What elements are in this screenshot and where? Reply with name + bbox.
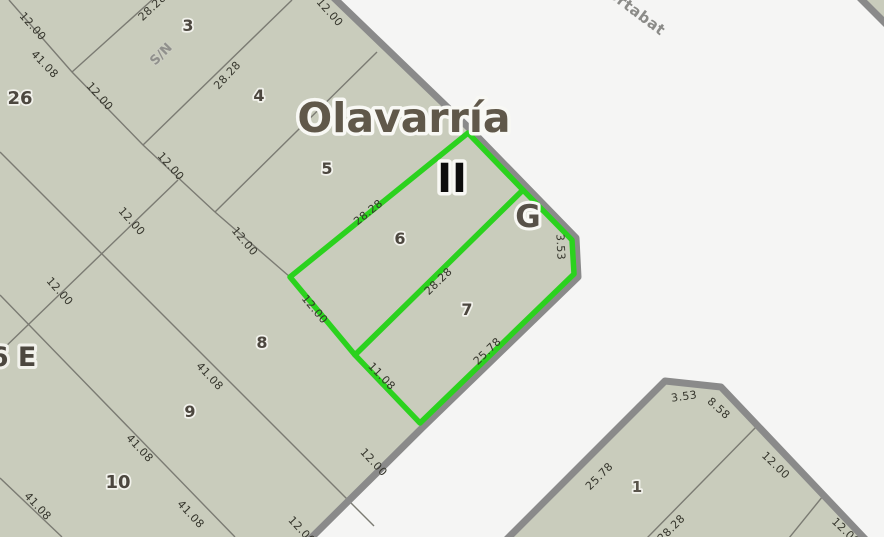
parcel-number: 4	[253, 86, 264, 105]
parcel-number: 3	[182, 16, 193, 35]
city-title-label: Olavarría	[297, 94, 510, 142]
bottom-right-city-block	[509, 381, 866, 537]
roman-numeral-marker: II	[437, 156, 467, 202]
parcel-number: 6	[394, 229, 405, 248]
parcel-number: 1	[632, 478, 642, 496]
parcel-number: 7	[461, 300, 472, 319]
map-canvas[interactable]: 12.00 41.08 28.28 12.00 28.28 12.00 12.0…	[0, 0, 884, 537]
g-zone-marker: G	[515, 199, 540, 235]
street-name-label: ortabat	[605, 0, 669, 39]
map-viewport: 12.00 41.08 28.28 12.00 28.28 12.00 12.0…	[0, 0, 884, 537]
parcel-number: 26	[7, 88, 32, 109]
parcel-number: 10	[105, 472, 130, 493]
parcel-number: 5	[321, 159, 332, 178]
dimension-label: 3.53	[553, 234, 567, 261]
block-edge-label: 6 E	[0, 342, 36, 373]
parcel-number: 8	[256, 333, 267, 352]
parcel-number: 9	[184, 402, 195, 421]
